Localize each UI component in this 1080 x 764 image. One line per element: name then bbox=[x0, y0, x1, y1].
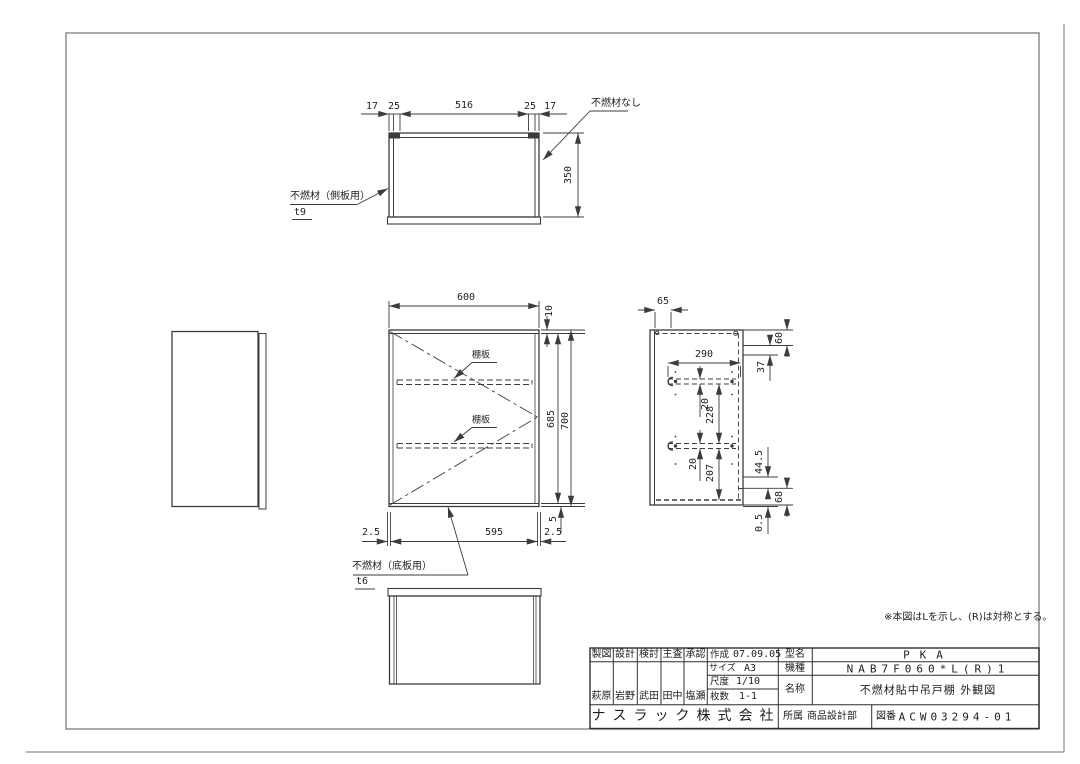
scale-label: 尺度 bbox=[710, 677, 729, 687]
label-no-incombustible: 不燃材なし bbox=[591, 99, 641, 109]
dim-25-right: 25 bbox=[524, 102, 536, 112]
label-bottom-incombustible: 不燃材（底板用） bbox=[352, 562, 432, 572]
machine-value: NAB7F060*L(R)1 bbox=[847, 663, 1010, 674]
dim-516: 516 bbox=[455, 101, 473, 111]
sheet-note: ※本図はLを示し、(R)は対称とする。 bbox=[884, 613, 1052, 623]
dim-5: 5 bbox=[549, 516, 559, 522]
dim-44-5: 44.5 bbox=[755, 450, 765, 474]
sign-header-reviewer: 検討 bbox=[639, 650, 659, 660]
dim-68: 68 bbox=[775, 491, 785, 503]
dim-25-left: 25 bbox=[388, 102, 400, 112]
dim-207: 207 bbox=[706, 464, 716, 482]
dim-65: 65 bbox=[657, 297, 669, 307]
dim-2-5-left: 2.5 bbox=[362, 528, 380, 538]
sign-name-drafter: 萩原 bbox=[592, 692, 612, 702]
sign-name-approver: 塩瀬 bbox=[686, 692, 706, 702]
dim-700: 700 bbox=[561, 412, 571, 430]
dim-60: 60 bbox=[775, 332, 785, 344]
scale-value: 1/10 bbox=[736, 677, 760, 687]
dim-2-5-right: 2.5 bbox=[544, 528, 562, 538]
size-label: サイズ bbox=[709, 664, 736, 673]
top-view bbox=[290, 111, 628, 224]
dim-0-5: 0.5 bbox=[755, 514, 765, 532]
dwg-no-value: ACW03294-01 bbox=[899, 711, 1016, 722]
dim-17-left: 17 bbox=[366, 102, 378, 112]
name-value: 不燃材貼中吊戸棚 外観図 bbox=[860, 685, 997, 696]
sign-header-approver: 承認 bbox=[686, 650, 706, 660]
dim-350: 350 bbox=[564, 166, 574, 184]
sign-header-designer: 設計 bbox=[615, 650, 635, 660]
left-view bbox=[172, 332, 266, 510]
created-label: 作成 bbox=[710, 650, 729, 660]
name-label: 名称 bbox=[785, 685, 805, 695]
dim-228: 228 bbox=[706, 406, 716, 424]
label-shelf-1: 棚板 bbox=[472, 352, 490, 361]
sign-name-reviewer: 武田 bbox=[639, 692, 659, 702]
label-side-thickness: t9 bbox=[294, 208, 306, 218]
dim-290: 290 bbox=[695, 350, 713, 360]
front-view bbox=[353, 301, 585, 589]
created-value: 07.09.05 bbox=[733, 650, 781, 660]
company-name: ナスラック株式会社 bbox=[592, 709, 781, 723]
model-label: 型名 bbox=[785, 650, 805, 660]
model-value: PKA bbox=[903, 650, 953, 661]
sign-name-chief: 田中 bbox=[663, 692, 683, 702]
sign-header-drafter: 製図 bbox=[592, 650, 612, 660]
dim-10: 10 bbox=[545, 305, 555, 317]
dim-17-right: 17 bbox=[544, 102, 556, 112]
size-value: A3 bbox=[744, 664, 756, 674]
machine-label: 機種 bbox=[785, 664, 805, 674]
dept-label: 所属 bbox=[783, 712, 803, 722]
label-bottom-thickness: t6 bbox=[356, 577, 368, 587]
dim-20-lower: 20 bbox=[689, 458, 699, 470]
dim-37: 37 bbox=[757, 361, 767, 373]
bottom-view bbox=[388, 589, 541, 685]
sign-name-designer: 岩野 bbox=[615, 692, 635, 702]
sheets-value: 1-1 bbox=[739, 692, 757, 702]
dim-600: 600 bbox=[457, 293, 475, 303]
dept-value: 商品設計部 bbox=[807, 712, 857, 722]
dwg-no-label: 図番 bbox=[876, 712, 896, 722]
dim-595: 595 bbox=[485, 528, 503, 538]
label-shelf-2: 棚板 bbox=[472, 417, 490, 426]
sign-header-chief: 主査 bbox=[663, 650, 683, 660]
drawing-sheet: 17 25 516 25 17 350 不燃材なし 不燃材（側板用） t9 60… bbox=[0, 0, 1080, 764]
label-side-incombustible: 不燃材（側板用） bbox=[290, 192, 370, 202]
dim-685: 685 bbox=[547, 410, 557, 428]
sheets-label: 枚数 bbox=[710, 692, 729, 702]
